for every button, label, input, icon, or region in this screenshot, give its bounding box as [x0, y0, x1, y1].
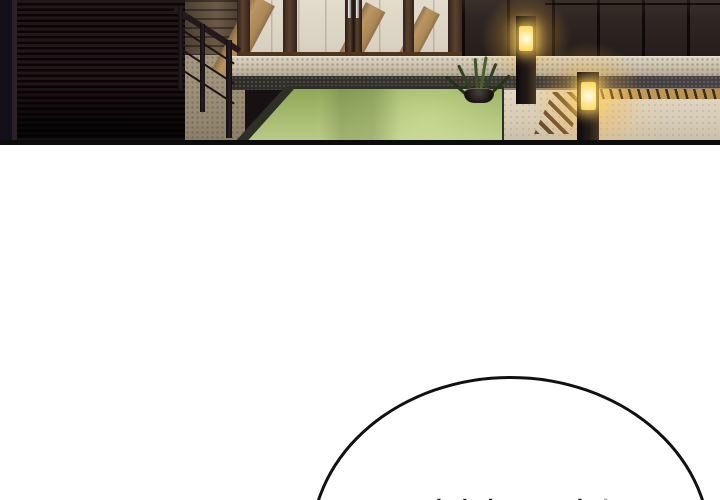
railing-post [226, 40, 232, 138]
lawn [234, 89, 502, 145]
lamp-light [581, 82, 596, 110]
left-wall-strip [0, 0, 12, 145]
wood-inlay-strip [593, 89, 720, 99]
wall-seam [545, 3, 720, 5]
scene-panel [0, 0, 720, 145]
plant-pot [464, 88, 494, 103]
railing-post [178, 6, 183, 90]
webtoon-page: 잠깐만요… 저기… [0, 0, 720, 500]
slatted-fence [17, 0, 185, 138]
railing-post [200, 24, 205, 112]
panel-bottom-border [0, 140, 720, 145]
door-handle [356, 0, 359, 18]
speech-text: 잠깐만요… 저기… [420, 491, 640, 500]
speech-bubble: 잠깐만요… 저기… [310, 376, 711, 500]
dark-panel-wall [462, 0, 720, 62]
door-handle [348, 0, 351, 18]
lamp-light [519, 26, 533, 51]
